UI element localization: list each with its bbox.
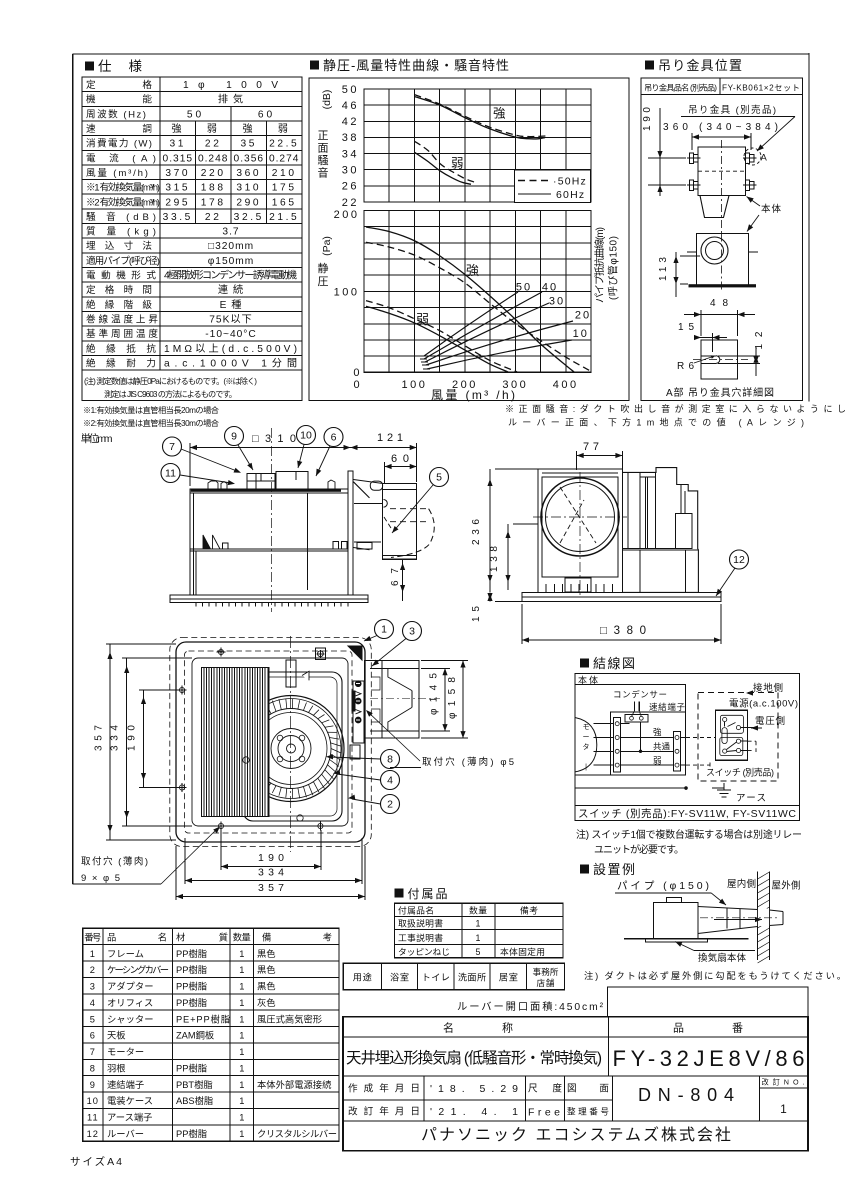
svg-text:400: 400 <box>553 379 579 391</box>
svg-text:強: 強 <box>171 122 184 135</box>
svg-text:弱: 弱 <box>278 123 291 135</box>
svg-text:品 番: 品 番 <box>673 1022 743 1035</box>
svg-text:50: 50 <box>187 109 204 120</box>
svg-text:8: 8 <box>387 754 393 766</box>
svg-text:(dB): (dB) <box>321 90 333 110</box>
svg-text:速結端子: 速結端子 <box>649 702 685 712</box>
svg-text:11: 11 <box>87 1113 99 1123</box>
svg-text:ルーバー: ルーバー <box>107 1129 144 1139</box>
svg-text:弱: 弱 <box>416 312 429 327</box>
svg-text:PE+PP樹脂: PE+PP樹脂 <box>176 1013 230 1024</box>
svg-text:強: 強 <box>493 107 506 121</box>
svg-text:0: 0 <box>353 367 359 379</box>
svg-text:風圧式高気密形: 風圧式高気密形 <box>257 1013 322 1024</box>
svg-text:370: 370 <box>165 168 190 179</box>
svg-text:単位:mm: 単位:mm <box>81 432 113 445</box>
svg-text:ユニットが必要です。: ユニットが必要です。 <box>594 843 684 856</box>
svg-text:強: 強 <box>242 122 255 135</box>
svg-text:アダプター: アダプター <box>107 981 154 992</box>
svg-text:番号: 番号 <box>84 931 101 942</box>
svg-text:1MΩ以上(d.c.500V): 1MΩ以上(d.c.500V) <box>164 343 298 355</box>
svg-text:コンデンサー: コンデンサー <box>613 690 667 700</box>
svg-text:灰色: 灰色 <box>257 997 276 1008</box>
svg-text:取付穴 (薄肉) φ5: 取付穴 (薄肉) φ5 <box>422 756 514 768</box>
svg-text:クリスタルシルバー: クリスタルシルバー <box>257 1129 337 1139</box>
svg-text:ルーバー開口面積:450cm²: ルーバー開口面積:450cm² <box>457 1000 604 1013</box>
svg-text:天井埋込形換気扇 (低騒音形・常時換気): 天井埋込形換気扇 (低騒音形・常時換気) <box>346 1049 602 1067</box>
svg-text:タ: タ <box>583 742 590 751</box>
svg-text:PP樹脂: PP樹脂 <box>176 948 207 959</box>
svg-text:材 質: 材 質 <box>176 931 228 942</box>
svg-text:1: 1 <box>239 1047 244 1057</box>
svg-text:30: 30 <box>549 296 565 308</box>
svg-text:32.5: 32.5 <box>234 212 264 223</box>
svg-text:シャッター: シャッター <box>107 1014 154 1024</box>
svg-text:60Hz: 60Hz <box>556 189 585 201</box>
svg-text:75K以下: 75K以下 <box>209 314 253 326</box>
svg-text:本体外部電源接続: 本体外部電源接続 <box>257 1079 332 1090</box>
svg-text:1: 1 <box>239 1129 244 1139</box>
svg-text:備考: 備考 <box>520 905 538 916</box>
svg-text:適用パイプ(呼び径): 適用パイプ(呼び径) <box>86 255 160 267</box>
svg-text:屋外側: 屋外側 <box>772 880 801 892</box>
svg-text:9: 9 <box>231 431 237 443</box>
svg-text:数量: 数量 <box>469 905 487 916</box>
svg-text:5: 5 <box>436 472 442 484</box>
svg-text:注) スイッチ1個で複数台運転する場合は別途リレー: 注) スイッチ1個で複数台運転する場合は別途リレー <box>576 828 802 841</box>
svg-text:付属品: 付属品 <box>408 887 448 901</box>
svg-text:138: 138 <box>489 546 500 572</box>
svg-text:4: 4 <box>387 775 393 787</box>
svg-text:33.5: 33.5 <box>163 212 193 223</box>
svg-text:電装ケース: 電装ケース <box>107 1095 153 1106</box>
svg-text:フレーム: フレーム <box>107 949 144 959</box>
svg-text:30: 30 <box>342 165 359 177</box>
svg-text:295: 295 <box>165 197 190 208</box>
svg-text:11: 11 <box>165 468 176 480</box>
svg-text:178: 178 <box>201 197 226 208</box>
svg-text:結線図: 結線図 <box>593 656 635 671</box>
svg-text:本体: 本体 <box>578 675 598 686</box>
svg-text:1: 1 <box>476 919 481 929</box>
svg-text:仕 様: 仕 様 <box>98 59 143 74</box>
svg-text:FY-32JE8V/86: FY-32JE8V/86 <box>613 1046 805 1071</box>
svg-text:PBT樹脂: PBT樹脂 <box>176 1079 213 1090</box>
svg-text:12: 12 <box>87 1129 99 1139</box>
svg-text:1: 1 <box>239 1014 244 1024</box>
svg-text:注) ダクトは必ず屋外側に勾配をもうけてください。: 注) ダクトは必ず屋外側に勾配をもうけてください。 <box>584 970 846 981</box>
svg-text:オリフィス: オリフィス <box>107 998 153 1008</box>
svg-text:A: A <box>761 153 768 164</box>
svg-text:334: 334 <box>110 725 121 751</box>
svg-text:188: 188 <box>201 183 226 194</box>
svg-text:1: 1 <box>239 1031 244 1041</box>
svg-text:図 面: 図 面 <box>567 1084 609 1095</box>
svg-text:113: 113 <box>658 257 669 281</box>
svg-text:2: 2 <box>387 799 393 811</box>
svg-text:吊り金具位置: 吊り金具位置 <box>658 58 742 73</box>
svg-text:接地側: 接地側 <box>753 682 783 694</box>
svg-text:0.274: 0.274 <box>269 153 300 164</box>
svg-text:175: 175 <box>272 183 297 194</box>
svg-text:31: 31 <box>170 139 187 150</box>
svg-text:190: 190 <box>258 852 286 864</box>
svg-text:名 称: 名 称 <box>443 1021 513 1035</box>
svg-text:ー: ー <box>583 734 590 741</box>
svg-text:0.315: 0.315 <box>163 153 194 164</box>
svg-text:1: 1 <box>239 949 244 959</box>
svg-text:22: 22 <box>205 212 222 223</box>
svg-text:60: 60 <box>258 109 275 120</box>
svg-text:連 続: 連 続 <box>218 283 244 296</box>
svg-text:付属品名: 付属品名 <box>398 905 434 916</box>
svg-text:PP樹脂: PP樹脂 <box>176 1128 207 1139</box>
svg-text:100: 100 <box>401 379 427 391</box>
svg-text:334: 334 <box>258 867 286 879</box>
svg-text:1: 1 <box>90 949 96 959</box>
svg-text:用途: 用途 <box>353 972 372 983</box>
svg-text:FY-KB061×2セット: FY-KB061×2セット <box>722 84 800 93</box>
svg-text:7: 7 <box>90 1047 96 1057</box>
svg-text:50: 50 <box>342 84 359 96</box>
svg-text:羽根: 羽根 <box>107 1062 126 1073</box>
svg-text:浴室: 浴室 <box>390 972 409 983</box>
svg-text:音: 音 <box>318 166 329 180</box>
svg-text:26: 26 <box>342 181 359 193</box>
svg-text:2: 2 <box>90 965 96 975</box>
svg-text:77: 77 <box>583 441 601 453</box>
svg-text:面: 面 <box>318 143 329 155</box>
svg-text:ケーシングカバー: ケーシングカバー <box>107 964 169 975</box>
svg-text:天板: 天板 <box>107 1030 126 1041</box>
svg-text:|: | <box>585 764 587 771</box>
svg-text:20: 20 <box>575 310 591 322</box>
svg-text:PP樹脂: PP樹脂 <box>176 997 207 1008</box>
svg-text:220: 220 <box>201 168 226 179</box>
svg-text:0.248: 0.248 <box>198 153 229 164</box>
svg-text:121: 121 <box>377 432 405 444</box>
svg-text:弱: 弱 <box>653 756 662 766</box>
svg-text:強: 強 <box>653 727 662 737</box>
svg-text:21.5: 21.5 <box>269 212 299 223</box>
svg-text:8: 8 <box>90 1063 96 1073</box>
svg-text:10: 10 <box>87 1096 99 1106</box>
svg-text:(注) 測定数値は静圧0Paにおけるものです。(※は除く): (注) 測定数値は静圧0Paにおけるものです。(※は除く) <box>84 376 257 386</box>
svg-text:PP樹脂: PP樹脂 <box>176 964 207 975</box>
svg-text:4極開放形コンデンサー誘導電動機: 4極開放形コンデンサー誘導電動機 <box>164 269 298 282</box>
svg-text:居室: 居室 <box>499 972 518 983</box>
svg-text:190: 190 <box>127 725 138 751</box>
svg-text:1: 1 <box>780 1102 787 1116</box>
svg-text:46: 46 <box>342 100 359 112</box>
svg-text:正: 正 <box>318 130 329 142</box>
svg-text:310: 310 <box>236 183 261 194</box>
svg-text:※1 有効換気量(m³/h): ※1 有効換気量(m³/h) <box>86 182 160 194</box>
svg-text:静: 静 <box>318 261 329 275</box>
svg-text:200: 200 <box>334 209 360 221</box>
svg-text:PP樹脂: PP樹脂 <box>176 981 207 992</box>
svg-text:黒色: 黒色 <box>257 948 276 959</box>
svg-text:10: 10 <box>300 430 312 442</box>
svg-text:1: 1 <box>239 982 244 992</box>
svg-text:工事説明書: 工事説明書 <box>398 932 443 943</box>
svg-text:黒色: 黒色 <box>257 964 276 975</box>
svg-text:1: 1 <box>239 1063 244 1073</box>
svg-text:アース端子: アース端子 <box>107 1112 152 1123</box>
svg-text:1: 1 <box>239 1096 244 1106</box>
svg-text:品 名: 品 名 <box>107 931 167 942</box>
svg-text:洗面所: 洗面所 <box>458 972 486 983</box>
svg-text:□320mm: □320mm <box>208 241 254 252</box>
svg-text:弱: 弱 <box>451 157 464 171</box>
svg-text:ZAM鋼板: ZAM鋼板 <box>176 1030 214 1041</box>
svg-text:排 気: 排 気 <box>218 93 244 106</box>
svg-text:3.7: 3.7 <box>222 227 239 238</box>
svg-text:A部 吊り金具穴詳細図: A部 吊り金具穴詳細図 <box>666 386 774 399</box>
svg-text:ABS樹脂: ABS樹脂 <box>176 1095 213 1106</box>
svg-text:22.5: 22.5 <box>269 139 299 150</box>
svg-text:店舗: 店舗 <box>537 977 555 988</box>
svg-text:※1:有効換気量は直管相当長20mの場合: ※1:有効換気量は直管相当長20mの場合 <box>83 405 219 415</box>
svg-text:取扱説明書: 取扱説明書 <box>398 918 443 929</box>
svg-text:5: 5 <box>476 947 481 957</box>
svg-text:1: 1 <box>239 1080 244 1090</box>
svg-text:22: 22 <box>342 197 359 209</box>
svg-text:事務所: 事務所 <box>533 966 559 977</box>
svg-text:φ150mm: φ150mm <box>208 256 255 267</box>
svg-text:Free: Free <box>528 1107 560 1119</box>
svg-text:E 種: E 種 <box>220 298 243 311</box>
svg-text:3: 3 <box>409 626 415 638</box>
svg-text:-10~40°C: -10~40°C <box>205 329 256 340</box>
svg-text:パナソニック エコシステムズ株式会社: パナソニック エコシステムズ株式会社 <box>421 1126 731 1144</box>
svg-text:電圧側: 電圧側 <box>755 715 785 727</box>
svg-text:数量: 数量 <box>233 931 251 942</box>
svg-text:本体: 本体 <box>761 203 781 215</box>
svg-text:50: 50 <box>516 281 532 293</box>
svg-text:トイレ: トイレ <box>422 973 450 983</box>
svg-text:100: 100 <box>334 287 360 299</box>
svg-text:5: 5 <box>90 1014 96 1024</box>
svg-text:1: 1 <box>239 998 244 1008</box>
svg-text:騒: 騒 <box>318 154 329 167</box>
svg-text:吊り金具 (別売品): 吊り金具 (別売品) <box>688 104 776 116</box>
svg-text:9: 9 <box>90 1080 96 1090</box>
svg-text:本体固定用: 本体固定用 <box>500 946 545 957</box>
svg-text:42: 42 <box>342 116 359 128</box>
svg-text:360: 360 <box>236 168 261 179</box>
svg-text:速結端子: 速結端子 <box>107 1079 144 1090</box>
svg-text:10: 10 <box>573 328 589 340</box>
svg-text:7: 7 <box>169 441 175 453</box>
svg-text:'21. 4. 1: '21. 4. 1 <box>430 1106 518 1118</box>
svg-text:210: 210 <box>272 168 297 179</box>
svg-text:PP樹脂: PP樹脂 <box>176 1062 207 1073</box>
svg-text:357: 357 <box>258 882 286 894</box>
svg-text:40: 40 <box>542 281 558 293</box>
svg-text:尺 度: 尺 度 <box>528 1083 562 1095</box>
svg-text:吊り金具品名 (別売品): 吊り金具品名 (別売品) <box>644 83 717 93</box>
svg-text:35: 35 <box>241 139 258 150</box>
svg-text:圧: 圧 <box>318 276 329 288</box>
svg-text:設置例: 設置例 <box>593 862 635 877</box>
svg-text:スイッチ (別売品): スイッチ (別売品) <box>706 767 774 778</box>
svg-text:34: 34 <box>342 148 359 160</box>
svg-text:(Pa): (Pa) <box>321 236 333 256</box>
svg-text:357: 357 <box>94 725 105 751</box>
svg-text:電源(a.c.100V): 電源(a.c.100V) <box>729 699 798 710</box>
svg-text:165: 165 <box>272 197 297 208</box>
svg-text:1: 1 <box>381 624 387 636</box>
svg-text:0: 0 <box>353 379 359 391</box>
svg-text:弱: 弱 <box>207 123 220 135</box>
svg-text:1: 1 <box>476 933 481 943</box>
svg-text:※2:有効換気量は直管相当長30mの場合: ※2:有効換気量は直管相当長30mの場合 <box>83 418 219 428</box>
svg-text:1: 1 <box>239 965 244 975</box>
svg-text:共通: 共通 <box>653 742 670 752</box>
svg-text:38: 38 <box>342 132 359 144</box>
svg-text:0.356: 0.356 <box>234 153 265 164</box>
svg-text:モ: モ <box>583 723 590 731</box>
svg-text:6: 6 <box>90 1031 96 1041</box>
svg-text:12: 12 <box>733 554 745 566</box>
svg-text:315: 315 <box>165 183 190 194</box>
svg-text:190: 190 <box>642 107 653 131</box>
svg-text:※2 有効換気量(m³/h): ※2 有効換気量(m³/h) <box>86 196 160 208</box>
svg-text:·50Hz: ·50Hz <box>553 175 587 187</box>
svg-text:モーター: モーター <box>107 1047 144 1057</box>
svg-text:アース: アース <box>736 793 766 804</box>
svg-text:改訂NO.: 改訂NO. <box>762 1078 805 1087</box>
svg-text:強: 強 <box>466 263 479 278</box>
svg-text:測定は JIS C9603 の方法によるものです。: 測定は JIS C9603 の方法によるものです。 <box>104 389 237 399</box>
svg-text:22: 22 <box>205 139 222 150</box>
svg-text:a.c.1000V 1分間: a.c.1000V 1分間 <box>164 358 298 370</box>
svg-text:236: 236 <box>471 519 482 545</box>
svg-text:屋内側: 屋内側 <box>727 878 756 890</box>
svg-text:3: 3 <box>90 982 96 992</box>
svg-text:1: 1 <box>239 1113 244 1123</box>
svg-text:(呼び管φ150): (呼び管φ150) <box>607 236 620 300</box>
svg-text:パイプ抵抗曲線(m): パイプ抵抗曲線(m) <box>593 227 606 303</box>
svg-text:換気扇本体: 換気扇本体 <box>698 952 746 964</box>
svg-text:周波数 (Hz): 周波数 (Hz) <box>86 108 146 120</box>
svg-text:静圧-風量特性曲線・騒音特性: 静圧-風量特性曲線・騒音特性 <box>323 58 509 73</box>
svg-text:290: 290 <box>236 197 261 208</box>
svg-text:6: 6 <box>331 432 337 444</box>
svg-text:取付穴 (薄肉): 取付穴 (薄肉) <box>81 856 148 868</box>
svg-text:タッピンねじ: タッピンねじ <box>398 947 450 957</box>
svg-text:4: 4 <box>90 998 96 1008</box>
svg-text:黒色: 黒色 <box>257 981 276 992</box>
svg-text:スイッチ (別売品):FY-SV11W, FY-SV11WC: スイッチ (別売品):FY-SV11W, FY-SV11WC <box>578 807 796 820</box>
